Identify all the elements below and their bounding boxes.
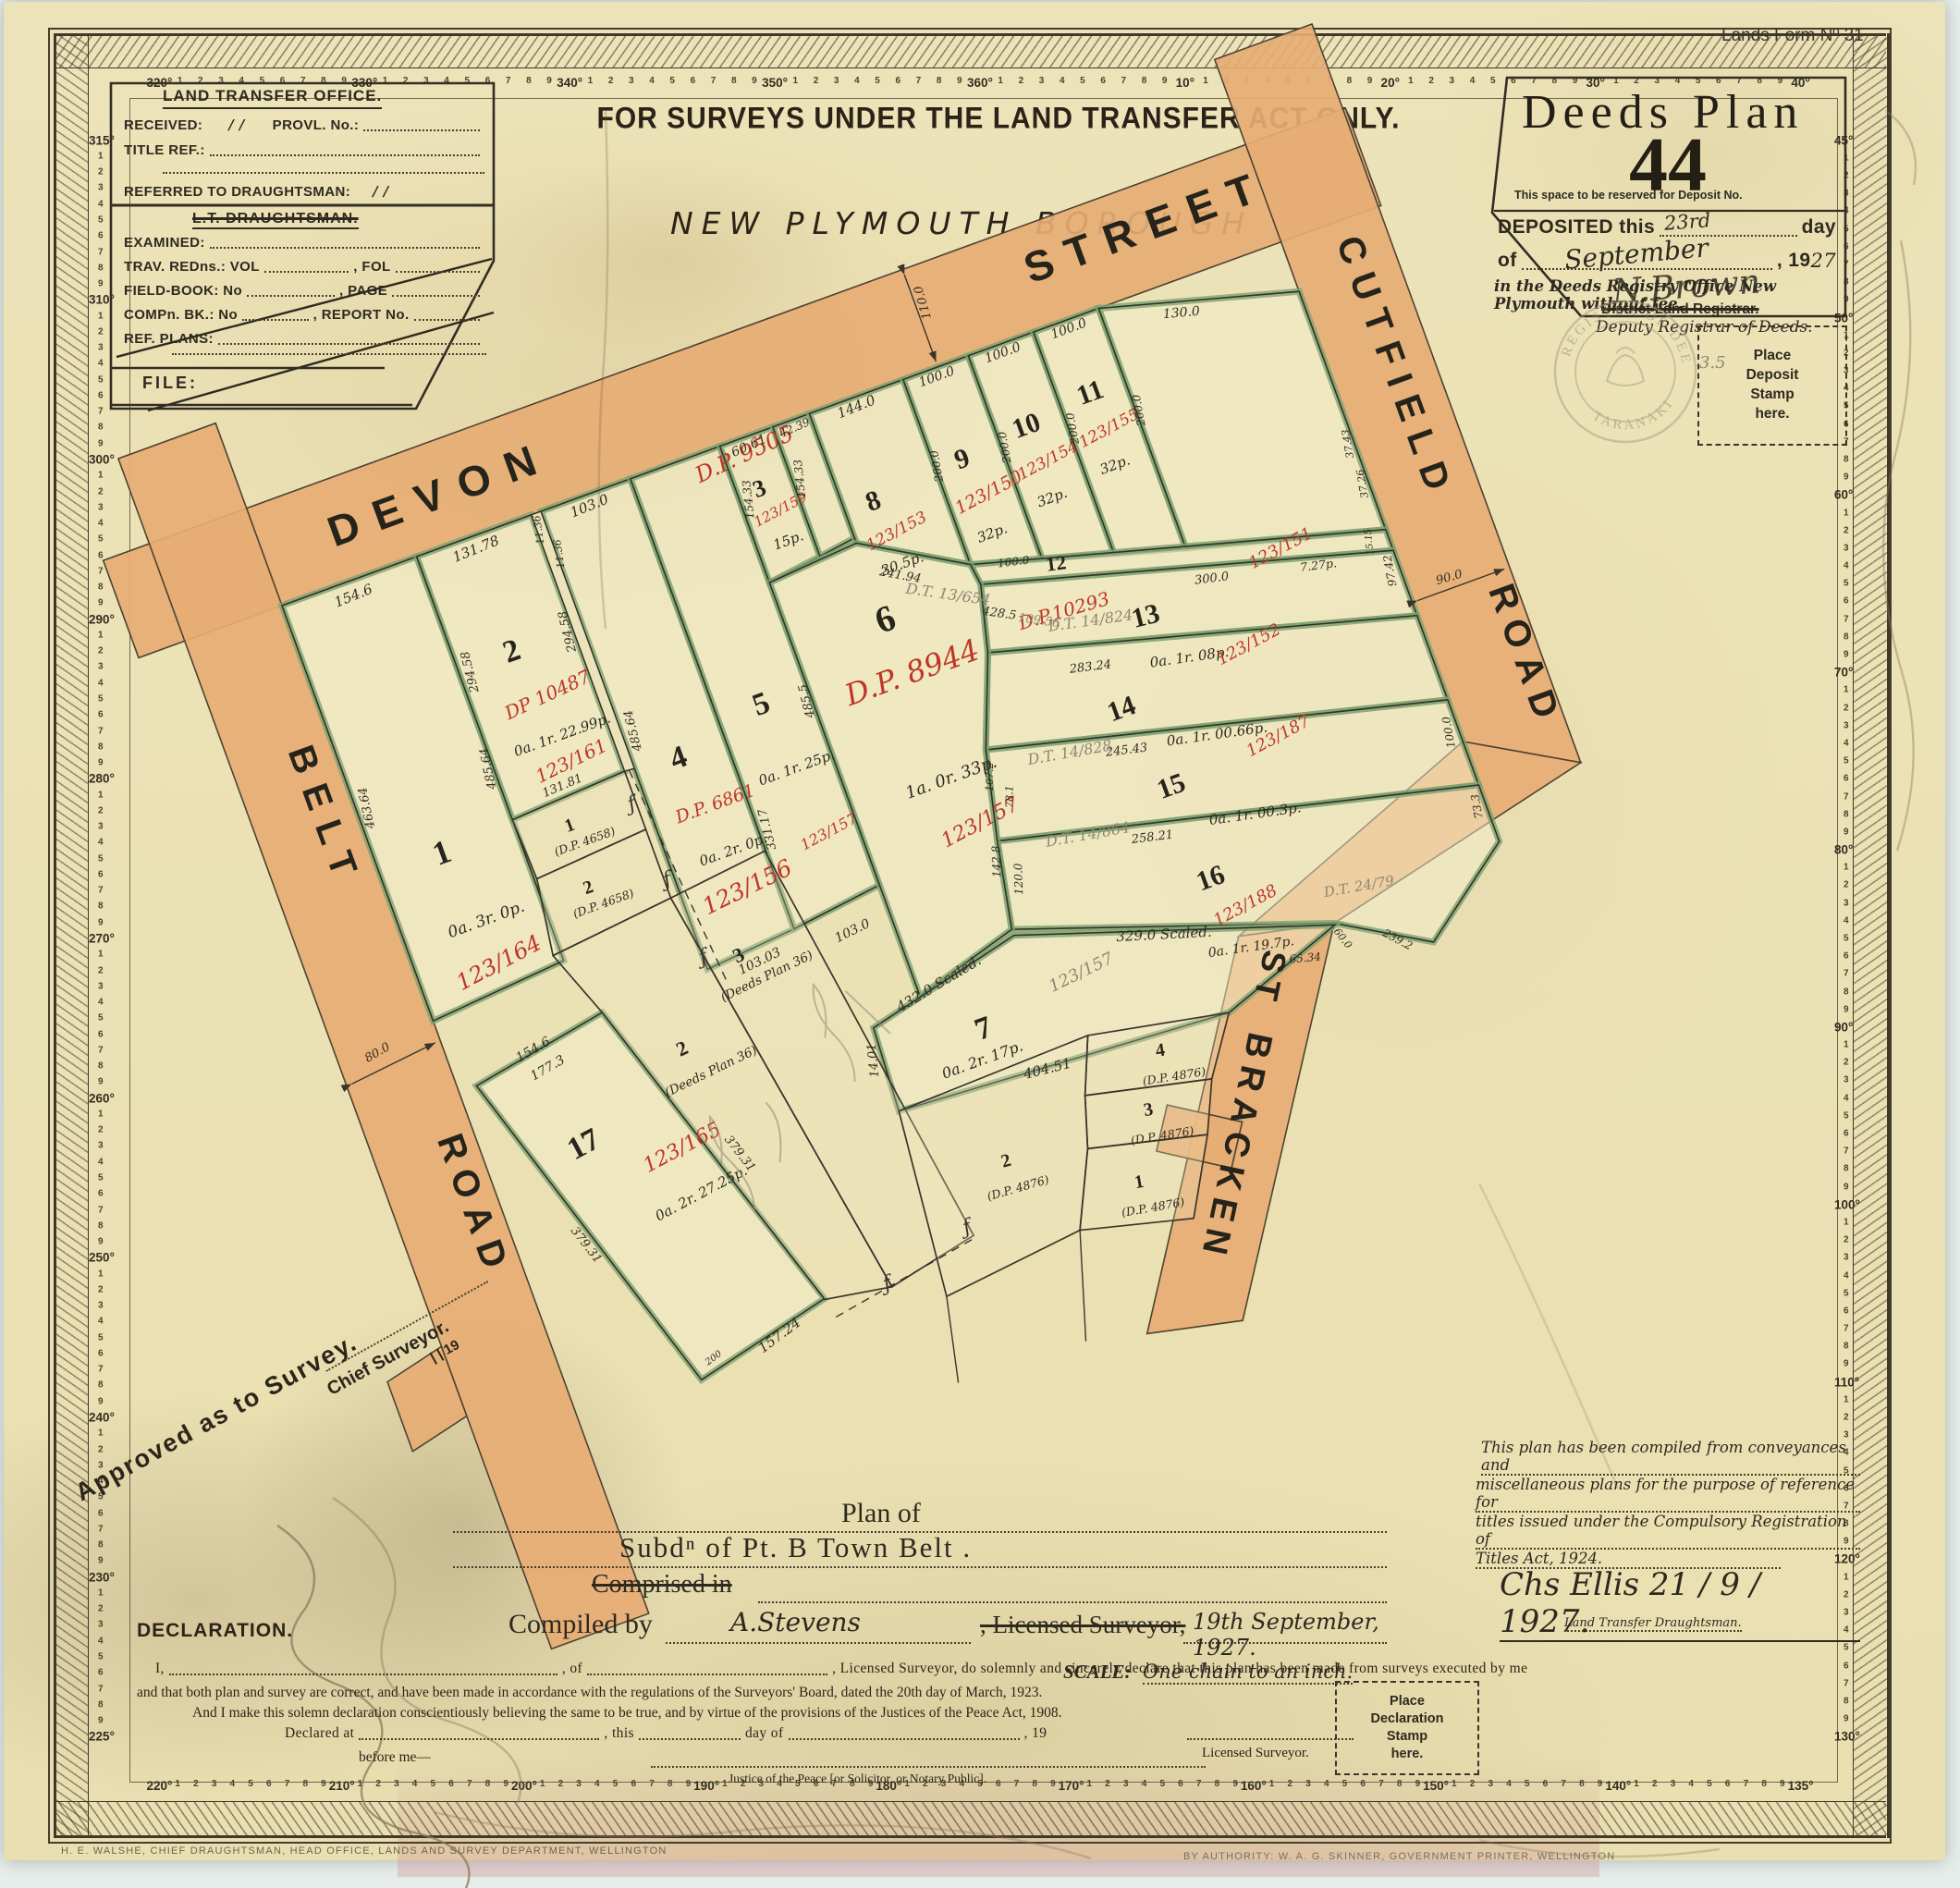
jp-signature-line — [651, 1766, 1206, 1768]
stamp-text: here. — [1391, 1746, 1424, 1763]
dimension: 142.8 — [989, 845, 1003, 877]
plan-of: Plan of — [841, 1498, 921, 1529]
dimension: 103.0 — [833, 916, 873, 946]
rule — [453, 1566, 1387, 1568]
dimension: 120.0 — [1011, 863, 1025, 895]
lot-number: 12 — [1045, 550, 1068, 575]
stamp-text: Declaration — [1371, 1710, 1444, 1728]
rule — [666, 1642, 971, 1644]
compiled-by-label: Compiled by — [508, 1609, 653, 1640]
decl-line2: and that both plan and survey are correc… — [137, 1685, 1042, 1701]
stamp-text: Stamp — [1387, 1728, 1427, 1746]
decl-line3: And I make this solemn declaration consc… — [192, 1705, 1062, 1722]
comprised-in-struck: Comprised in — [592, 1570, 732, 1600]
declaration-stamp-box: Place Declaration Stamp here. — [1335, 1681, 1479, 1775]
footer-right: BY AUTHORITY: W. A. G. SKINNER, GOVERNME… — [1183, 1851, 1615, 1862]
pencil-note: 3.5 — [1699, 353, 1726, 373]
footer-left: H. E. WALSHE, CHIEF DRAUGHTSMAN, HEAD OF… — [61, 1845, 668, 1857]
decl-of: , of — [562, 1661, 582, 1677]
decl-day-of: day of — [745, 1725, 784, 1742]
dimension: 78.1 — [1004, 785, 1016, 808]
licensed-surveyor-label: Licensed Surveyor. — [1202, 1746, 1309, 1761]
approved-as-to-survey: Approved as to Survey. — [70, 1328, 362, 1507]
subdivision-title: Subdⁿ of Pt. B Town Belt . — [619, 1531, 972, 1564]
note-line: This plan has been compiled from conveya… — [1481, 1439, 1860, 1476]
before-me: before me— — [359, 1749, 431, 1766]
decl-i: I, — [155, 1661, 165, 1677]
declared-at: Declared at — [285, 1725, 354, 1742]
rule — [1183, 1642, 1387, 1644]
dimension: 107.2 — [984, 763, 996, 792]
surveyor-signature-line — [1187, 1738, 1354, 1740]
jp-label: Justice of the Peace [or Solicitor, or N… — [729, 1772, 986, 1786]
dimension: 65.34 — [1289, 950, 1321, 966]
decl-this: , this — [604, 1725, 634, 1742]
decl-19: , 19 — [1024, 1725, 1047, 1742]
licensed-surveyor-struck: , Licensed Surveyor, — [980, 1611, 1185, 1639]
note-line: miscellaneous plans for the purpose of r… — [1476, 1476, 1860, 1513]
decl-line1: , Licensed Surveyor, do solemnly and sin… — [832, 1661, 1527, 1677]
rule — [758, 1601, 1387, 1603]
survey-plan-sheet: 320°123456789330°123456789340°1234567893… — [0, 0, 1960, 1888]
note-line: titles issued under the Compulsory Regis… — [1476, 1513, 1860, 1550]
stamp-text: Place — [1390, 1693, 1425, 1710]
draughtsman-role: Land Transfer Draughtsman. — [1564, 1616, 1742, 1632]
surveyor-name-handwritten: A.Stevens — [730, 1607, 861, 1637]
compile-date-handwritten: 19th September, 1927. — [1193, 1609, 1387, 1661]
declaration-heading: DECLARATION. — [137, 1620, 293, 1642]
